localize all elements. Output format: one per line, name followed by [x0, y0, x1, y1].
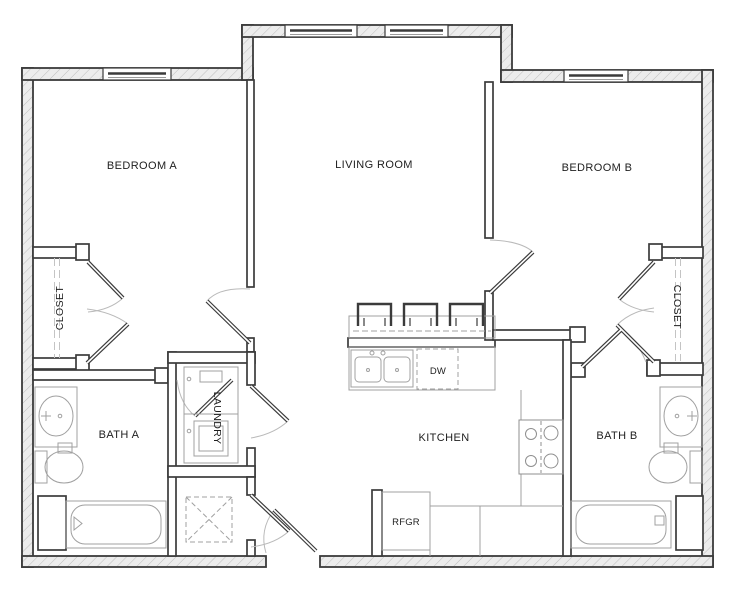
jamb: [649, 244, 662, 260]
door-arc: [251, 531, 289, 547]
door-arc: [207, 289, 250, 301]
door-arc: [619, 299, 654, 312]
living-room-label: LIVING ROOM: [335, 159, 413, 171]
window-living-right: [385, 25, 448, 37]
bedroom-b-label: BEDROOM B: [562, 162, 633, 174]
wall-kitchen-bar: [348, 338, 495, 347]
bar-stools: [358, 304, 483, 326]
jamb: [155, 368, 168, 383]
exterior-walls: [22, 25, 713, 567]
dishwasher-label: DW: [430, 366, 446, 377]
door-arc: [177, 380, 195, 416]
closet-a-label: CLOSET: [54, 286, 66, 331]
wall-stub-fridge: [372, 490, 382, 556]
bar-stool: [358, 304, 391, 326]
bathtub-bath-a: [66, 501, 166, 548]
floor-plan: BEDROOM A LIVING ROOM BEDROOM B BATH A B…: [0, 0, 740, 592]
wall-bedroom-a-east: [247, 80, 254, 287]
laundry-fixtures: [184, 367, 238, 542]
bar-stool: [450, 304, 483, 326]
water-heater: [186, 497, 232, 542]
door-arc: [617, 308, 654, 325]
exterior-wall-popup-top: [242, 25, 512, 37]
bedroom-a-label: BEDROOM A: [107, 160, 177, 172]
kitchen-sink: [351, 350, 413, 387]
bathtub-bath-b: [571, 501, 671, 548]
door-arc: [490, 240, 533, 252]
exterior-wall-right: [702, 70, 713, 567]
wall-kitchen-east: [563, 340, 571, 556]
toilet-bath-a: [35, 451, 83, 483]
wall-laundry-south: [168, 466, 255, 477]
linen-closet-bath-a: [38, 496, 66, 550]
wall-bath-a-north: [33, 370, 168, 380]
window-bedroom-a: [103, 68, 171, 80]
sink-bath-b: [660, 387, 702, 453]
bar-counter: [349, 316, 495, 338]
floor-plan-drawing: BEDROOM A LIVING ROOM BEDROOM B BATH A B…: [0, 0, 740, 592]
sink-bath-a: [35, 387, 77, 453]
toilet-bath-b: [649, 451, 702, 483]
exterior-wall-left: [22, 68, 33, 567]
refrigerator-label: RFGR: [392, 517, 420, 528]
wall-mech-east: [247, 477, 255, 495]
wall-bedroom-b-south: [493, 330, 573, 340]
linen-closet-bath-b: [676, 496, 703, 550]
exterior-wall-bottom-left: [22, 556, 266, 567]
wall-laundry-east-upper: [247, 352, 255, 385]
exterior-wall-bottom-right: [320, 556, 713, 567]
jamb-mech-door: [247, 540, 255, 556]
bath-b-label: BATH B: [596, 430, 637, 442]
wall-living-east: [485, 82, 493, 238]
jamb: [570, 327, 585, 342]
wall-laundry-north: [168, 352, 255, 363]
closet-b-label: CLOSET: [671, 285, 683, 330]
kitchen-label: KITCHEN: [418, 432, 469, 444]
interior-walls: [33, 80, 703, 556]
range-stove: [519, 420, 563, 474]
jamb: [76, 244, 89, 260]
laundry-label: LAUNDRY: [211, 392, 223, 445]
bar-stool: [404, 304, 437, 326]
bath-a-label: BATH A: [99, 429, 140, 441]
bottom-counter: [430, 506, 563, 556]
door-arc: [251, 421, 288, 438]
east-counter: [521, 390, 563, 506]
wall-laundry-west: [168, 352, 176, 556]
base-cabinets: [349, 347, 495, 390]
window-bedroom-b: [564, 70, 628, 82]
window-living-left: [285, 25, 357, 37]
